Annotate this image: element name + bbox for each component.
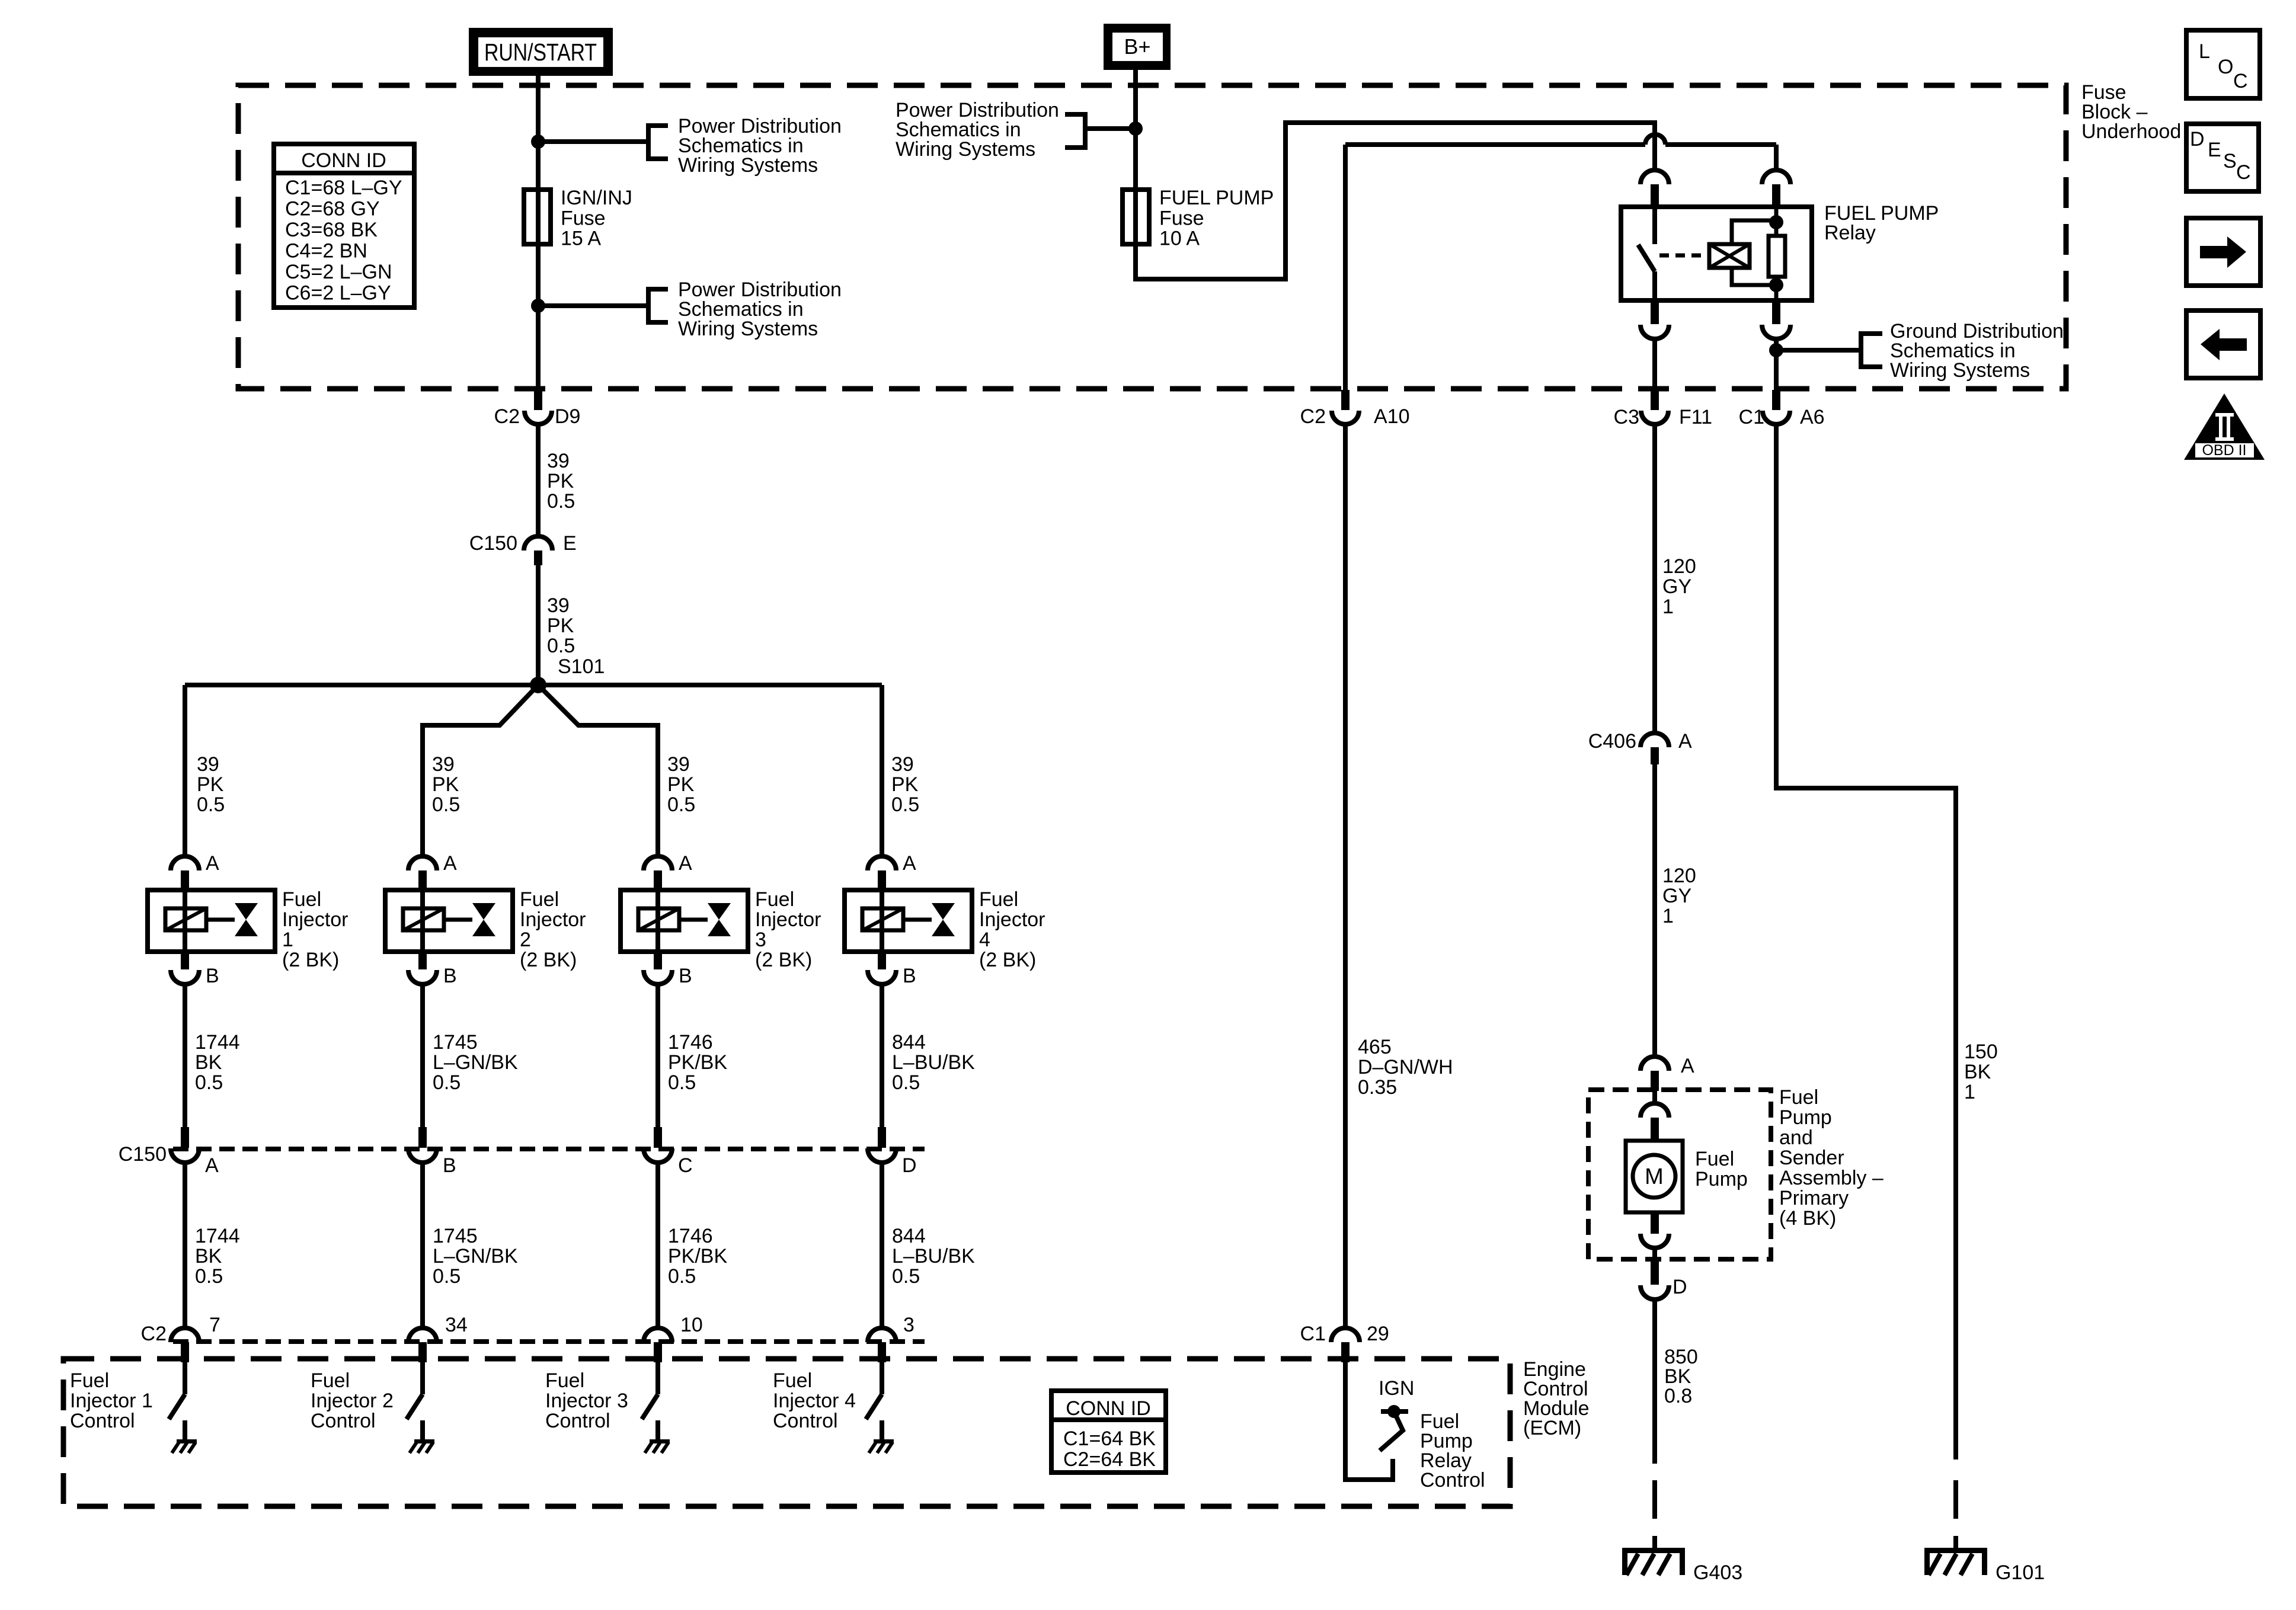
svg-text:Underhood: Underhood (2081, 120, 2181, 143)
svg-text:O: O (2218, 56, 2233, 78)
svg-text:A: A (206, 852, 219, 875)
svg-text:M: M (1645, 1164, 1664, 1189)
svg-text:PK: PK (891, 773, 919, 796)
svg-text:Control: Control (545, 1410, 610, 1432)
svg-text:Control: Control (70, 1410, 135, 1432)
svg-text:Control: Control (1420, 1469, 1485, 1491)
svg-text:844: 844 (892, 1031, 926, 1054)
svg-text:S101: S101 (558, 655, 605, 678)
svg-text:OBD II: OBD II (2202, 442, 2246, 459)
svg-text:Fuel: Fuel (755, 888, 794, 911)
svg-text:A6: A6 (1800, 406, 1825, 428)
svg-text:Fuel: Fuel (979, 888, 1018, 911)
svg-text:Pump: Pump (1695, 1168, 1748, 1190)
svg-text:D9: D9 (555, 405, 580, 428)
svg-text:A: A (1681, 1055, 1694, 1077)
svg-text:0.5: 0.5 (197, 793, 225, 816)
svg-text:PK: PK (667, 773, 695, 796)
svg-text:C6=2 L–GY: C6=2 L–GY (285, 282, 391, 305)
svg-text:B: B (443, 1154, 456, 1177)
svg-text:1: 1 (1964, 1081, 1975, 1103)
svg-text:Injector: Injector (979, 908, 1045, 931)
svg-text:Fuel: Fuel (1695, 1148, 1734, 1170)
svg-text:Injector: Injector (282, 908, 348, 931)
svg-text:L: L (2199, 40, 2210, 63)
svg-text:3: 3 (903, 1314, 914, 1336)
svg-text:G101: G101 (1996, 1561, 2045, 1584)
svg-text:0.5: 0.5 (433, 1071, 461, 1094)
svg-text:15 A: 15 A (561, 228, 601, 250)
svg-text:844: 844 (892, 1225, 926, 1247)
svg-text:C2: C2 (141, 1323, 167, 1345)
svg-text:0.5: 0.5 (892, 1265, 920, 1288)
svg-text:FUEL PUMP: FUEL PUMP (1159, 187, 1274, 209)
svg-text:B+: B+ (1124, 34, 1150, 59)
svg-text:CONN ID: CONN ID (301, 149, 386, 172)
svg-text:Control: Control (773, 1410, 838, 1432)
svg-text:(2 BK): (2 BK) (520, 949, 577, 971)
svg-text:Fuse: Fuse (1159, 207, 1204, 229)
svg-text:10: 10 (680, 1314, 703, 1336)
svg-text:L–BU/BK: L–BU/BK (892, 1245, 975, 1267)
svg-text:GY: GY (1662, 575, 1691, 598)
svg-text:465: 465 (1358, 1036, 1392, 1058)
svg-text:C2=68 GY: C2=68 GY (285, 198, 380, 220)
svg-text:Fuel: Fuel (773, 1369, 812, 1392)
svg-text:39: 39 (547, 450, 570, 472)
svg-text:C1=64 BK: C1=64 BK (1063, 1427, 1156, 1450)
svg-text:Wiring Systems: Wiring Systems (678, 154, 818, 177)
svg-text:Fuse: Fuse (561, 207, 606, 229)
svg-text:0.5: 0.5 (667, 793, 695, 816)
svg-text:120: 120 (1662, 865, 1696, 887)
svg-text:Injector: Injector (755, 908, 821, 931)
svg-text:1744: 1744 (195, 1031, 240, 1054)
svg-text:C150: C150 (119, 1143, 167, 1166)
svg-text:B: B (903, 965, 916, 987)
svg-text:B: B (206, 965, 219, 987)
svg-text:C406: C406 (1588, 730, 1636, 753)
svg-text:0.5: 0.5 (195, 1265, 223, 1288)
svg-text:0.5: 0.5 (547, 635, 575, 657)
svg-text:A10: A10 (1374, 405, 1410, 428)
svg-text:L–GN/BK: L–GN/BK (433, 1051, 518, 1074)
svg-text:Injector: Injector (520, 908, 586, 931)
svg-text:B: B (679, 965, 692, 987)
svg-text:C: C (2233, 70, 2248, 92)
svg-text:Fuel: Fuel (520, 888, 559, 911)
svg-text:C2=64 BK: C2=64 BK (1063, 1448, 1156, 1471)
svg-text:F11: F11 (1679, 406, 1712, 428)
svg-text:0.5: 0.5 (433, 1265, 461, 1288)
svg-text:34: 34 (445, 1314, 468, 1336)
svg-text:Fuel: Fuel (1779, 1086, 1818, 1109)
svg-text:GY: GY (1662, 885, 1691, 907)
svg-text:Injector 4: Injector 4 (773, 1390, 856, 1412)
svg-text:IGN: IGN (1379, 1377, 1414, 1400)
svg-text:1: 1 (282, 929, 293, 951)
svg-text:Wiring Systems: Wiring Systems (678, 318, 818, 340)
svg-text:A: A (205, 1154, 219, 1177)
svg-text:Injector 1: Injector 1 (70, 1390, 153, 1412)
svg-text:39: 39 (667, 753, 690, 776)
svg-text:1745: 1745 (433, 1225, 478, 1247)
svg-text:PK: PK (197, 773, 224, 796)
svg-text:IGN/INJ: IGN/INJ (561, 187, 632, 209)
svg-text:(4 BK): (4 BK) (1779, 1207, 1836, 1230)
svg-text:0.5: 0.5 (891, 793, 919, 816)
svg-text:Fuel: Fuel (545, 1369, 584, 1392)
svg-text:(2 BK): (2 BK) (282, 949, 339, 971)
svg-text:RUN/START: RUN/START (484, 39, 597, 66)
svg-text:A: A (679, 852, 692, 875)
svg-text:39: 39 (891, 753, 914, 776)
svg-text:C: C (678, 1154, 693, 1177)
svg-text:C3=68 BK: C3=68 BK (285, 219, 378, 241)
svg-text:Pump: Pump (1779, 1106, 1832, 1129)
svg-text:C1=68 L–GY: C1=68 L–GY (285, 177, 402, 199)
svg-text:Relay: Relay (1824, 222, 1876, 244)
svg-text:C150: C150 (469, 532, 517, 555)
svg-text:CONN ID: CONN ID (1066, 1397, 1151, 1420)
svg-text:L–BU/BK: L–BU/BK (892, 1051, 975, 1074)
svg-text:C1: C1 (1300, 1323, 1326, 1345)
svg-text:Assembly –: Assembly – (1779, 1167, 1884, 1189)
svg-text:G403: G403 (1693, 1561, 1742, 1584)
svg-text:1745: 1745 (433, 1031, 478, 1054)
svg-text:1746: 1746 (668, 1225, 713, 1247)
svg-text:39: 39 (432, 753, 455, 776)
svg-text:(2 BK): (2 BK) (979, 949, 1036, 971)
svg-text:0.5: 0.5 (668, 1265, 696, 1288)
svg-text:C2: C2 (1300, 405, 1326, 428)
svg-text:0.5: 0.5 (547, 490, 575, 513)
svg-text:1: 1 (1662, 596, 1674, 618)
svg-text:0.35: 0.35 (1358, 1076, 1397, 1099)
svg-text:10 A: 10 A (1159, 228, 1200, 250)
svg-text:Injector 3: Injector 3 (545, 1390, 628, 1412)
svg-text:PK: PK (547, 614, 574, 637)
svg-text:C5=2 L–GN: C5=2 L–GN (285, 261, 392, 283)
svg-text:Fuel: Fuel (70, 1369, 109, 1392)
svg-text:D: D (1673, 1276, 1687, 1298)
svg-text:A: A (903, 852, 916, 875)
svg-text:3: 3 (755, 929, 766, 951)
svg-text:B: B (443, 965, 457, 987)
svg-text:Primary: Primary (1779, 1187, 1849, 1209)
svg-text:Fuel: Fuel (311, 1369, 350, 1392)
svg-text:PK: PK (547, 470, 574, 492)
svg-text:E: E (2208, 139, 2221, 161)
svg-text:(2 BK): (2 BK) (755, 949, 812, 971)
svg-text:Fuel: Fuel (282, 888, 321, 911)
svg-text:0.8: 0.8 (1664, 1385, 1692, 1407)
svg-text:A: A (443, 852, 457, 875)
svg-text:Control: Control (311, 1410, 376, 1432)
svg-text:Wiring Systems: Wiring Systems (1890, 359, 2030, 382)
svg-text:C2: C2 (494, 405, 520, 428)
svg-text:L–GN/BK: L–GN/BK (433, 1245, 518, 1267)
svg-text:C4=2 BN: C4=2 BN (285, 240, 367, 263)
svg-text:and: and (1779, 1126, 1813, 1149)
svg-text:1: 1 (1662, 905, 1674, 927)
svg-text:S: S (2223, 150, 2237, 172)
svg-text:D–GN/WH: D–GN/WH (1358, 1056, 1453, 1078)
svg-text:PK: PK (432, 773, 459, 796)
svg-text:D: D (2190, 128, 2205, 151)
svg-text:BK: BK (1964, 1061, 1991, 1083)
svg-text:1746: 1746 (668, 1031, 713, 1054)
svg-text:4: 4 (979, 929, 990, 951)
svg-text:0.5: 0.5 (195, 1071, 223, 1094)
svg-text:A: A (1678, 730, 1692, 753)
svg-text:39: 39 (547, 594, 570, 617)
svg-text:Injector 2: Injector 2 (311, 1390, 394, 1412)
svg-text:120: 120 (1662, 555, 1696, 578)
svg-text:1744: 1744 (195, 1225, 240, 1247)
svg-text:150: 150 (1964, 1041, 1998, 1063)
svg-text:E: E (563, 532, 577, 555)
svg-text:39: 39 (197, 753, 219, 776)
svg-text:C3: C3 (1614, 406, 1639, 428)
svg-text:PK/BK: PK/BK (668, 1051, 727, 1074)
svg-text:7: 7 (209, 1314, 220, 1336)
svg-text:Sender: Sender (1779, 1147, 1844, 1169)
svg-text:29: 29 (1367, 1323, 1389, 1345)
svg-text:0.5: 0.5 (668, 1071, 696, 1094)
svg-text:Wiring Systems: Wiring Systems (896, 138, 1035, 161)
svg-text:C1: C1 (1739, 406, 1764, 428)
svg-text:D: D (902, 1154, 917, 1177)
svg-text:C: C (2236, 161, 2251, 184)
svg-text:BK: BK (195, 1245, 222, 1267)
svg-text:BK: BK (195, 1051, 222, 1074)
svg-text:PK/BK: PK/BK (668, 1245, 727, 1267)
svg-text:2: 2 (520, 929, 531, 951)
svg-text:0.5: 0.5 (892, 1071, 920, 1094)
svg-text:(ECM): (ECM) (1523, 1417, 1581, 1439)
svg-text:0.5: 0.5 (432, 793, 460, 816)
